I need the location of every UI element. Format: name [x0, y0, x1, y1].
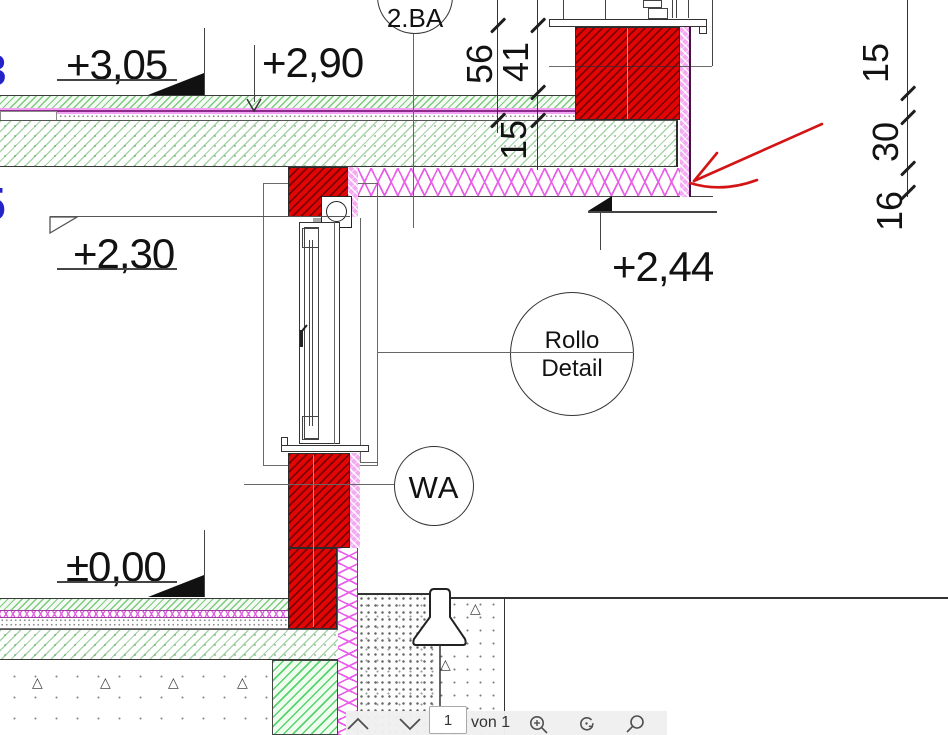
- level-underline: [57, 79, 177, 81]
- soffit-line: [357, 196, 713, 197]
- rebar-triangle-symbol: △: [470, 600, 481, 617]
- railing-line: [672, 0, 673, 18]
- callout-leader-2ba: [413, 34, 414, 228]
- parapet-insulation-strip: [680, 19, 691, 197]
- perimeter-insulation-band: [337, 548, 358, 735]
- red-annotation-arrow: [690, 124, 822, 187]
- callout-label-2ba: 2.BA: [377, 3, 453, 34]
- coping-drip-lip: [699, 26, 707, 34]
- cutoff-text-fragment: 5: [0, 183, 13, 219]
- foundation-skirt: [272, 660, 338, 735]
- callout-label-rollo-line1: Rollo: [510, 327, 634, 355]
- reveal-inner-line: [360, 218, 361, 462]
- sash-bottom-profile: [302, 416, 319, 440]
- parapet-joint-line: [627, 28, 628, 119]
- callout-leader-wa: [244, 484, 394, 485]
- rebar-triangle-symbol: △: [440, 656, 451, 673]
- frame-inner-line: [334, 222, 335, 444]
- zoom-in-button[interactable]: [528, 714, 550, 735]
- rebar-triangle-symbol: △: [100, 674, 111, 691]
- upper-concrete-slab: [0, 120, 678, 167]
- level-label-244: +2,44: [612, 246, 713, 288]
- search-button[interactable]: [624, 714, 646, 735]
- dim-value-15-right: 15: [856, 21, 896, 105]
- level-stem: [204, 530, 205, 597]
- ground-floor-impact-insulation: [0, 618, 288, 629]
- dim-value-15: 15: [494, 98, 534, 182]
- chevron-up-icon: [345, 716, 371, 732]
- railing-line: [676, 0, 677, 18]
- railing-post-base: [643, 0, 662, 8]
- parapet-outline-left: [563, 0, 564, 19]
- chevron-down-icon: [397, 716, 423, 732]
- window-sill: [281, 445, 369, 452]
- zoom-in-icon: [528, 714, 550, 735]
- window-handle: [300, 330, 303, 347]
- ground-floor-sealing-layer: [0, 610, 288, 618]
- page-count-label: von 1: [471, 714, 510, 732]
- roller-shutter-roll: [326, 201, 347, 222]
- page-number-input[interactable]: [429, 706, 467, 734]
- window-glazing: [309, 240, 313, 426]
- rebar-triangle-symbol: △: [32, 674, 43, 691]
- parapet-outline-bottom: [549, 66, 712, 67]
- rebar-triangle-symbol: △: [237, 674, 248, 691]
- level-stem-244: [600, 211, 601, 250]
- ground-concrete-slab: [0, 629, 338, 660]
- sash-top-profile: [302, 228, 319, 248]
- rebar-triangle-symbol: △: [168, 674, 179, 691]
- cutoff-text-fragment: 3: [0, 52, 7, 86]
- next-page-button[interactable]: [397, 716, 423, 732]
- railing-post-plate: [648, 8, 668, 19]
- search-icon: [624, 714, 646, 735]
- level-underline: [57, 581, 177, 583]
- rotate-button[interactable]: [576, 714, 598, 735]
- level-line-230: [50, 216, 350, 217]
- level-underline: [57, 268, 177, 270]
- subbase-layer: [0, 660, 272, 735]
- wall-masonry-upper: [288, 453, 350, 548]
- sill-end-cap: [281, 437, 288, 446]
- dim-value-56: 56: [460, 22, 500, 106]
- level-leader-290: [254, 45, 255, 102]
- wall-joint-line: [313, 455, 314, 627]
- previous-page-button[interactable]: [345, 716, 371, 732]
- pdf-viewer-page: 56 41 15 15 30 16 +3,05 +2,90 2.BA +2,30: [0, 0, 948, 735]
- callout-label-wa: WA: [394, 470, 474, 506]
- level-triangle-244: [588, 196, 612, 211]
- dim-value-16: 16: [870, 169, 910, 253]
- parapet-coping-plate: [549, 19, 707, 27]
- railing-line: [688, 0, 689, 18]
- level-stem: [204, 28, 205, 95]
- level-line-244: [588, 211, 717, 213]
- wall-insulation-strip: [350, 453, 360, 548]
- ground-floor-screed-layer: [0, 598, 288, 610]
- level-label-290: +2,90: [262, 42, 363, 84]
- dim-value-41: 41: [496, 20, 536, 104]
- parapet-outline-right: [712, 0, 713, 66]
- callout-label-rollo-line2: Detail: [510, 355, 634, 383]
- ground-line: [450, 597, 948, 599]
- railing-line: [605, 0, 606, 19]
- rotate-icon: [576, 714, 598, 735]
